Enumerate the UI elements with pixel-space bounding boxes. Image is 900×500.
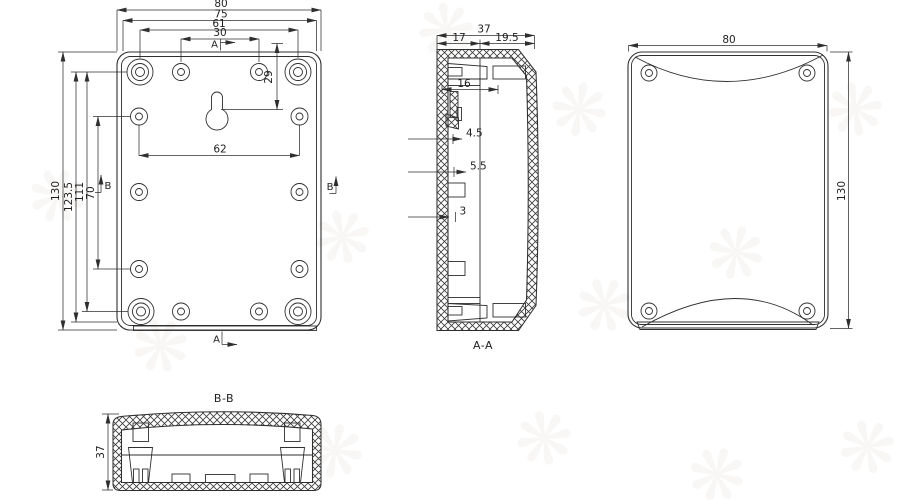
dim-back-height: 130 bbox=[836, 181, 848, 201]
section-marker-a-top: A bbox=[211, 39, 235, 51]
dim-aa-boss-width: 16 bbox=[457, 78, 471, 90]
dim-aa-rib-1: 4.5 bbox=[466, 128, 483, 140]
mounting-holes bbox=[131, 64, 309, 321]
watermark-glyph: ❋ bbox=[696, 205, 776, 302]
watermark-glyph: ❋ bbox=[506, 392, 582, 487]
dim-front-hole-span-top: 30 bbox=[213, 27, 226, 39]
dim-aa-rib-2: 5.5 bbox=[470, 161, 487, 173]
keyhole-slot bbox=[206, 92, 228, 130]
dim-aa-depth: 37 bbox=[477, 24, 490, 36]
dim-back-width: 80 bbox=[722, 34, 735, 46]
section-label-b-right: B bbox=[327, 182, 334, 193]
watermark-glyph: ❋ bbox=[542, 64, 616, 157]
watermark-glyph: ❋ bbox=[818, 64, 892, 157]
dim-bb-depth: 37 bbox=[95, 445, 107, 458]
watermark-glyph: ❋ bbox=[828, 400, 900, 497]
section-aa-title: A-A bbox=[473, 339, 493, 352]
dim-front-keyhole-offset: 29 bbox=[263, 70, 275, 83]
dim-aa-wall: 3 bbox=[460, 206, 467, 218]
lid-bottom-arc bbox=[642, 298, 813, 327]
section-marker-b-left: B bbox=[95, 175, 112, 193]
dim-aa-depth-right: 19.5 bbox=[495, 32, 518, 44]
section-label-a-bottom: A bbox=[213, 335, 220, 346]
section-bb-view: 37 B-B bbox=[95, 392, 321, 491]
front-left-dimensions: 130 123.5 111 70 bbox=[50, 52, 131, 330]
corner-screw-boss bbox=[285, 59, 311, 85]
section-label-a-top: A bbox=[211, 40, 218, 51]
watermark-glyph: ❋ bbox=[675, 426, 758, 500]
section-bb-title: B-B bbox=[214, 392, 234, 405]
dim-front-hole-span-left: 70 bbox=[85, 186, 97, 199]
enclosure-inner-outline bbox=[122, 57, 317, 326]
watermark-glyph: ❋ bbox=[119, 298, 202, 397]
section-marker-a-bottom: A bbox=[213, 332, 237, 346]
dim-front-height-outer: 130 bbox=[50, 181, 62, 201]
corner-screw-boss bbox=[285, 299, 311, 325]
lid-top-arc bbox=[635, 55, 823, 82]
section-aa-cavity bbox=[448, 58, 528, 322]
section-marker-b-right: B bbox=[327, 177, 336, 194]
dim-aa-depth-left: 17 bbox=[452, 32, 465, 44]
front-top-dimensions: 80 75 61 30 bbox=[117, 0, 321, 62]
corner-screw-boss bbox=[127, 59, 153, 85]
watermark-glyph: ❋ bbox=[303, 190, 383, 287]
watermark-glyph: ❋ bbox=[562, 256, 647, 356]
dim-front-hole-span-bottom: 62 bbox=[213, 144, 226, 156]
engineering-drawing-page: ❋ ❋ ❋ ❋ ❋ ❋ ❋ ❋ ❋ ❋ ❋ ❋ bbox=[0, 0, 900, 500]
enclosure-technical-drawing: ❋ ❋ ❋ ❋ ❋ ❋ ❋ ❋ ❋ ❋ ❋ ❋ bbox=[0, 0, 900, 500]
section-label-b-left: B bbox=[105, 181, 112, 192]
